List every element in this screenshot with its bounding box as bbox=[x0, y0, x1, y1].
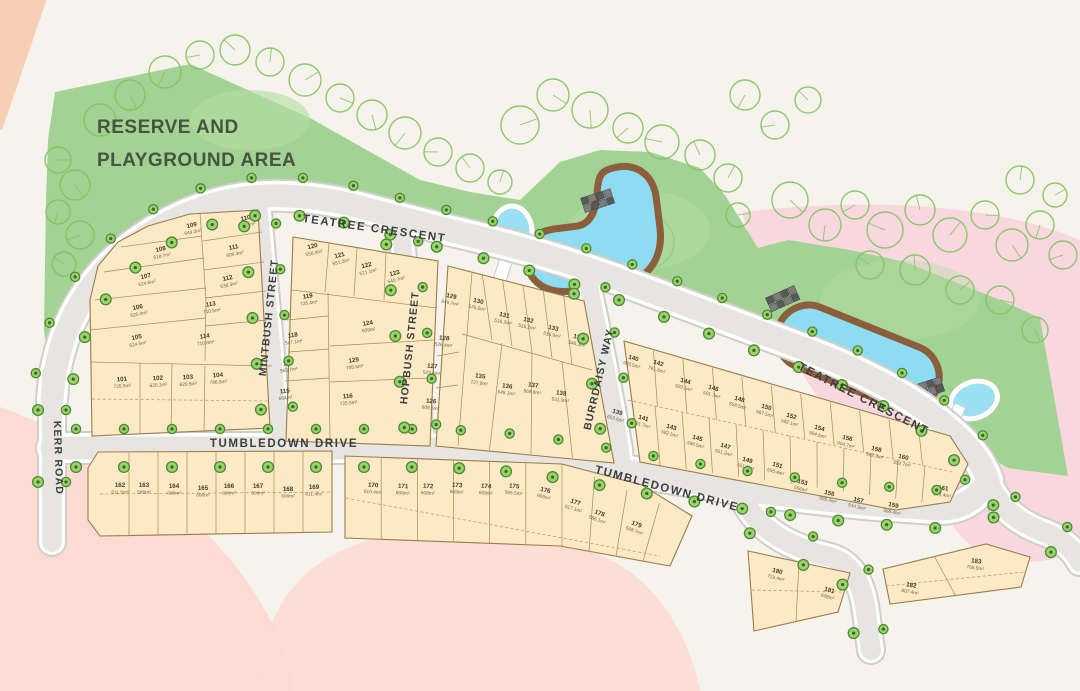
street-tree-icon bbox=[988, 512, 999, 523]
lot-number: 128 bbox=[439, 334, 451, 342]
lot-area: 620.5m² bbox=[179, 381, 197, 388]
lot-number: 174 bbox=[481, 483, 492, 491]
street-tree-icon bbox=[749, 345, 760, 356]
street-tree-icon bbox=[71, 462, 82, 473]
street-tree-icon bbox=[33, 477, 44, 488]
street-tree-icon bbox=[33, 405, 44, 416]
street-tree-icon bbox=[649, 451, 658, 460]
street-tree-icon bbox=[406, 462, 417, 473]
site-plan: 101725.5m²102620.3m²103620.5m²104786.5m²… bbox=[0, 0, 1080, 691]
lot-area: 608m² bbox=[167, 491, 181, 497]
street-tree-icon bbox=[837, 579, 848, 590]
street-tree-icon bbox=[601, 283, 610, 292]
lot-number: 102 bbox=[152, 375, 163, 383]
street-tree-icon bbox=[215, 424, 224, 433]
lot-number: 125 bbox=[348, 356, 360, 364]
lot-166: 166608m² bbox=[222, 483, 236, 497]
lot-area: 608m² bbox=[251, 491, 265, 497]
lot-number: 167 bbox=[253, 483, 264, 490]
street-tree-icon bbox=[71, 424, 80, 433]
street-tree-icon bbox=[881, 519, 892, 530]
street-tree-icon bbox=[594, 480, 605, 491]
lot-number: 115 bbox=[280, 387, 291, 395]
street-tree-icon bbox=[619, 373, 628, 382]
subdivision-plan-canvas: 101725.5m²102620.3m²103620.5m²104786.5m²… bbox=[0, 0, 1080, 691]
street-tree-icon bbox=[864, 565, 873, 574]
street-tree-icon bbox=[848, 628, 859, 639]
street-tree-icon bbox=[243, 267, 254, 278]
lot-number: 163 bbox=[139, 482, 150, 489]
lot-163: 163588m² bbox=[137, 482, 151, 496]
street-tree-icon bbox=[930, 523, 941, 534]
street-tree-icon bbox=[627, 419, 636, 428]
reserve-label-line2: PLAYGROUND AREA bbox=[97, 150, 296, 171]
street-tree-icon bbox=[614, 295, 625, 306]
street-tree-icon bbox=[569, 288, 580, 299]
lot-number: 162 bbox=[115, 482, 126, 489]
lot-number: 164 bbox=[169, 483, 180, 490]
lot-number: 127 bbox=[427, 362, 439, 370]
street-tree-icon bbox=[978, 431, 987, 440]
street-tree-icon bbox=[239, 221, 250, 232]
street-tree-icon bbox=[166, 237, 177, 248]
street-tree-icon bbox=[744, 528, 755, 539]
street-tree-icon bbox=[349, 181, 358, 190]
lot-number: 169 bbox=[309, 484, 320, 491]
lot-number: 103 bbox=[182, 374, 193, 382]
street-tree-icon bbox=[256, 404, 267, 415]
street-tree-icon bbox=[68, 374, 79, 385]
street-tree-icon bbox=[381, 239, 392, 250]
street-tree-icon bbox=[427, 374, 436, 383]
lot-area: 608m² bbox=[396, 490, 410, 497]
street-tree-icon bbox=[1011, 492, 1020, 501]
lot-165: 165608m² bbox=[196, 485, 210, 499]
lot-area: 620.3m² bbox=[149, 382, 167, 389]
street-tree-icon bbox=[119, 424, 128, 433]
street-tree-icon bbox=[704, 328, 715, 339]
street-tree-icon bbox=[250, 210, 261, 221]
street-tree-icon bbox=[284, 356, 293, 365]
reserve-label-line1: RESERVE AND bbox=[97, 117, 239, 138]
lot-number: 104 bbox=[212, 372, 223, 380]
street-tree-icon bbox=[790, 473, 799, 482]
street-tree-icon bbox=[288, 402, 297, 411]
lot-number: 114 bbox=[199, 332, 210, 340]
lot-number: 113 bbox=[205, 300, 216, 308]
street-tree-icon bbox=[247, 313, 258, 324]
lot-number: 135 bbox=[475, 372, 487, 380]
street-tree-icon bbox=[547, 472, 558, 483]
street-tree-icon bbox=[960, 475, 969, 484]
street-tree-icon bbox=[263, 462, 274, 473]
street-tree-icon bbox=[535, 229, 544, 238]
street-tree-icon bbox=[359, 424, 368, 433]
lot-number: 168 bbox=[283, 486, 294, 493]
street-tree-icon bbox=[61, 405, 70, 414]
lot-number: 116 bbox=[343, 392, 354, 400]
street-tree-icon bbox=[31, 369, 40, 378]
street-tree-icon bbox=[897, 368, 906, 377]
street-tree-icon bbox=[763, 310, 772, 319]
street-tree-icon bbox=[578, 333, 589, 344]
street-tree-icon bbox=[659, 311, 670, 322]
lot-number: 136 bbox=[502, 382, 514, 390]
street-tree-icon bbox=[1046, 547, 1057, 558]
street-tree-icon bbox=[940, 396, 949, 405]
lot-number: 119 bbox=[302, 292, 313, 300]
lot-area: 608m² bbox=[421, 490, 435, 497]
street-tree-icon bbox=[130, 262, 141, 273]
street-tree-icon bbox=[442, 205, 451, 214]
lot-167: 167608m² bbox=[251, 483, 265, 497]
lot-number: 175 bbox=[509, 482, 521, 490]
lot-area: 611.4m² bbox=[305, 492, 323, 498]
street-tree-icon bbox=[885, 482, 894, 491]
street-tree-icon bbox=[582, 244, 591, 253]
lot-area: 608m² bbox=[281, 494, 295, 500]
street-tree-icon bbox=[798, 560, 809, 571]
street-tree-icon bbox=[808, 532, 817, 541]
lot-area: 725.5m² bbox=[113, 383, 131, 390]
lot-number: 137 bbox=[528, 381, 540, 389]
lot-168: 168608m² bbox=[281, 486, 295, 500]
street-tree-icon bbox=[595, 423, 606, 434]
street-tree-icon bbox=[478, 253, 489, 264]
street-tree-icon bbox=[100, 294, 111, 305]
street-tree-icon bbox=[879, 625, 888, 634]
street-tree-icon bbox=[298, 173, 307, 182]
street-tree-icon bbox=[215, 462, 226, 473]
street-tree-icon bbox=[395, 193, 404, 202]
street-tree-icon bbox=[385, 285, 396, 296]
street-tree-icon bbox=[785, 510, 796, 521]
lot-number: 183 bbox=[971, 557, 983, 565]
street-tree-icon bbox=[949, 455, 960, 466]
street-tree-icon bbox=[399, 422, 410, 433]
street-tree-icon bbox=[280, 310, 289, 319]
street-tree-icon bbox=[766, 507, 775, 516]
lot-area: 608m² bbox=[479, 490, 493, 497]
street-tree-icon bbox=[524, 265, 535, 276]
street-tree-icon bbox=[628, 260, 637, 269]
lot-area: 608m² bbox=[196, 493, 210, 499]
street-tree-icon bbox=[853, 346, 862, 355]
street-tree-icon bbox=[149, 205, 158, 214]
street-tree-icon bbox=[432, 420, 441, 429]
street-tree-icon bbox=[423, 328, 432, 337]
street-tree-icon bbox=[311, 462, 322, 473]
lot-number: 171 bbox=[398, 483, 409, 491]
block-101-114 bbox=[90, 210, 270, 436]
lot-number: 124 bbox=[362, 319, 374, 327]
street-tree-icon bbox=[833, 515, 844, 526]
street-tree-icon bbox=[601, 443, 610, 452]
street-tree-icon bbox=[196, 184, 205, 193]
lot-area: 588m² bbox=[137, 490, 151, 496]
street-tree-icon bbox=[79, 332, 90, 343]
street-tree-icon bbox=[988, 500, 999, 511]
street-tree-icon bbox=[808, 327, 817, 336]
street-tree-icon bbox=[456, 426, 465, 435]
lot-area: 786.5m² bbox=[209, 379, 227, 386]
street-tree-icon bbox=[1063, 522, 1072, 531]
street-tree-icon bbox=[119, 462, 130, 473]
street-tree-icon bbox=[673, 277, 682, 286]
lot-number: 138 bbox=[556, 389, 568, 397]
street-tree-icon bbox=[554, 435, 563, 444]
lot-area: 511.5m² bbox=[111, 490, 129, 496]
lot-area: 610.4m² bbox=[364, 489, 382, 496]
street-label-tumbledown-west: TUMBLEDOWN DRIVE bbox=[210, 438, 358, 450]
street-tree-icon bbox=[311, 424, 320, 433]
lot-number: 166 bbox=[224, 483, 235, 490]
lot-number: 118 bbox=[287, 331, 298, 339]
street-tree-icon bbox=[45, 318, 54, 327]
street-tree-icon bbox=[418, 283, 427, 292]
street-tree-icon bbox=[696, 459, 705, 468]
street-tree-icon bbox=[505, 429, 514, 438]
lot-number: 172 bbox=[423, 483, 434, 491]
street-tree-icon bbox=[838, 478, 847, 487]
lot-area: 608m² bbox=[222, 491, 236, 497]
street-tree-icon bbox=[271, 219, 280, 228]
street-tree-icon bbox=[106, 234, 115, 243]
street-tree-icon bbox=[932, 485, 941, 494]
street-tree-icon bbox=[390, 331, 401, 342]
street-tree-icon bbox=[718, 293, 727, 302]
street-tree-icon bbox=[501, 466, 512, 477]
street-tree-icon bbox=[454, 463, 465, 474]
lot-number: 126 bbox=[426, 397, 438, 405]
lot-number: 165 bbox=[198, 485, 209, 492]
street-tree-icon bbox=[488, 217, 497, 226]
street-tree-icon bbox=[167, 424, 176, 433]
street-tree-icon bbox=[359, 462, 370, 473]
street-tree-icon bbox=[247, 173, 256, 182]
street-tree-icon bbox=[263, 424, 272, 433]
street-tree-icon bbox=[71, 272, 80, 281]
lot-number: 173 bbox=[452, 482, 463, 490]
lot-number: 170 bbox=[368, 482, 379, 490]
street-tree-icon bbox=[743, 466, 752, 475]
street-tree-icon bbox=[207, 219, 218, 230]
lot-164: 164608m² bbox=[167, 483, 181, 497]
lot-number: 101 bbox=[116, 376, 127, 384]
street-tree-icon bbox=[167, 462, 178, 473]
lot-area: 608m² bbox=[450, 489, 464, 496]
